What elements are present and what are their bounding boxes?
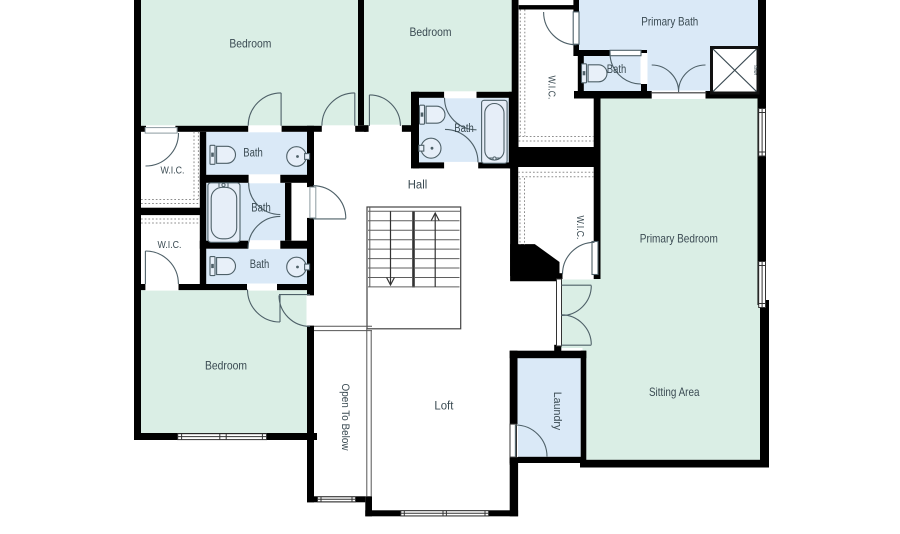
svg-text:Bath: Bath (454, 123, 474, 135)
svg-text:Bath: Bath (251, 203, 271, 215)
svg-text:Open To Below: Open To Below (339, 384, 351, 451)
svg-text:Laundry: Laundry (551, 392, 563, 431)
svg-text:W.I.C.: W.I.C. (546, 76, 558, 100)
svg-text:Sitting Area: Sitting Area (649, 385, 700, 399)
svg-text:Shwr: Shwr (753, 65, 758, 76)
svg-text:Loft: Loft (434, 401, 454, 413)
svg-text:W.I.C.: W.I.C. (574, 216, 586, 240)
svg-text:Primary Bath: Primary Bath (641, 15, 698, 29)
svg-text:Hall: Hall (408, 180, 428, 192)
svg-text:Bedroom: Bedroom (410, 25, 452, 39)
svg-text:Bath: Bath (607, 64, 627, 76)
svg-text:Bedroom: Bedroom (229, 37, 271, 51)
svg-text:W.I.C.: W.I.C. (161, 165, 185, 177)
svg-text:Primary Bedroom: Primary Bedroom (640, 231, 718, 245)
svg-text:W.I.C.: W.I.C. (158, 239, 182, 251)
svg-text:Bedroom: Bedroom (205, 359, 247, 373)
svg-text:Bath: Bath (250, 259, 270, 271)
svg-text:Bath: Bath (243, 148, 263, 160)
